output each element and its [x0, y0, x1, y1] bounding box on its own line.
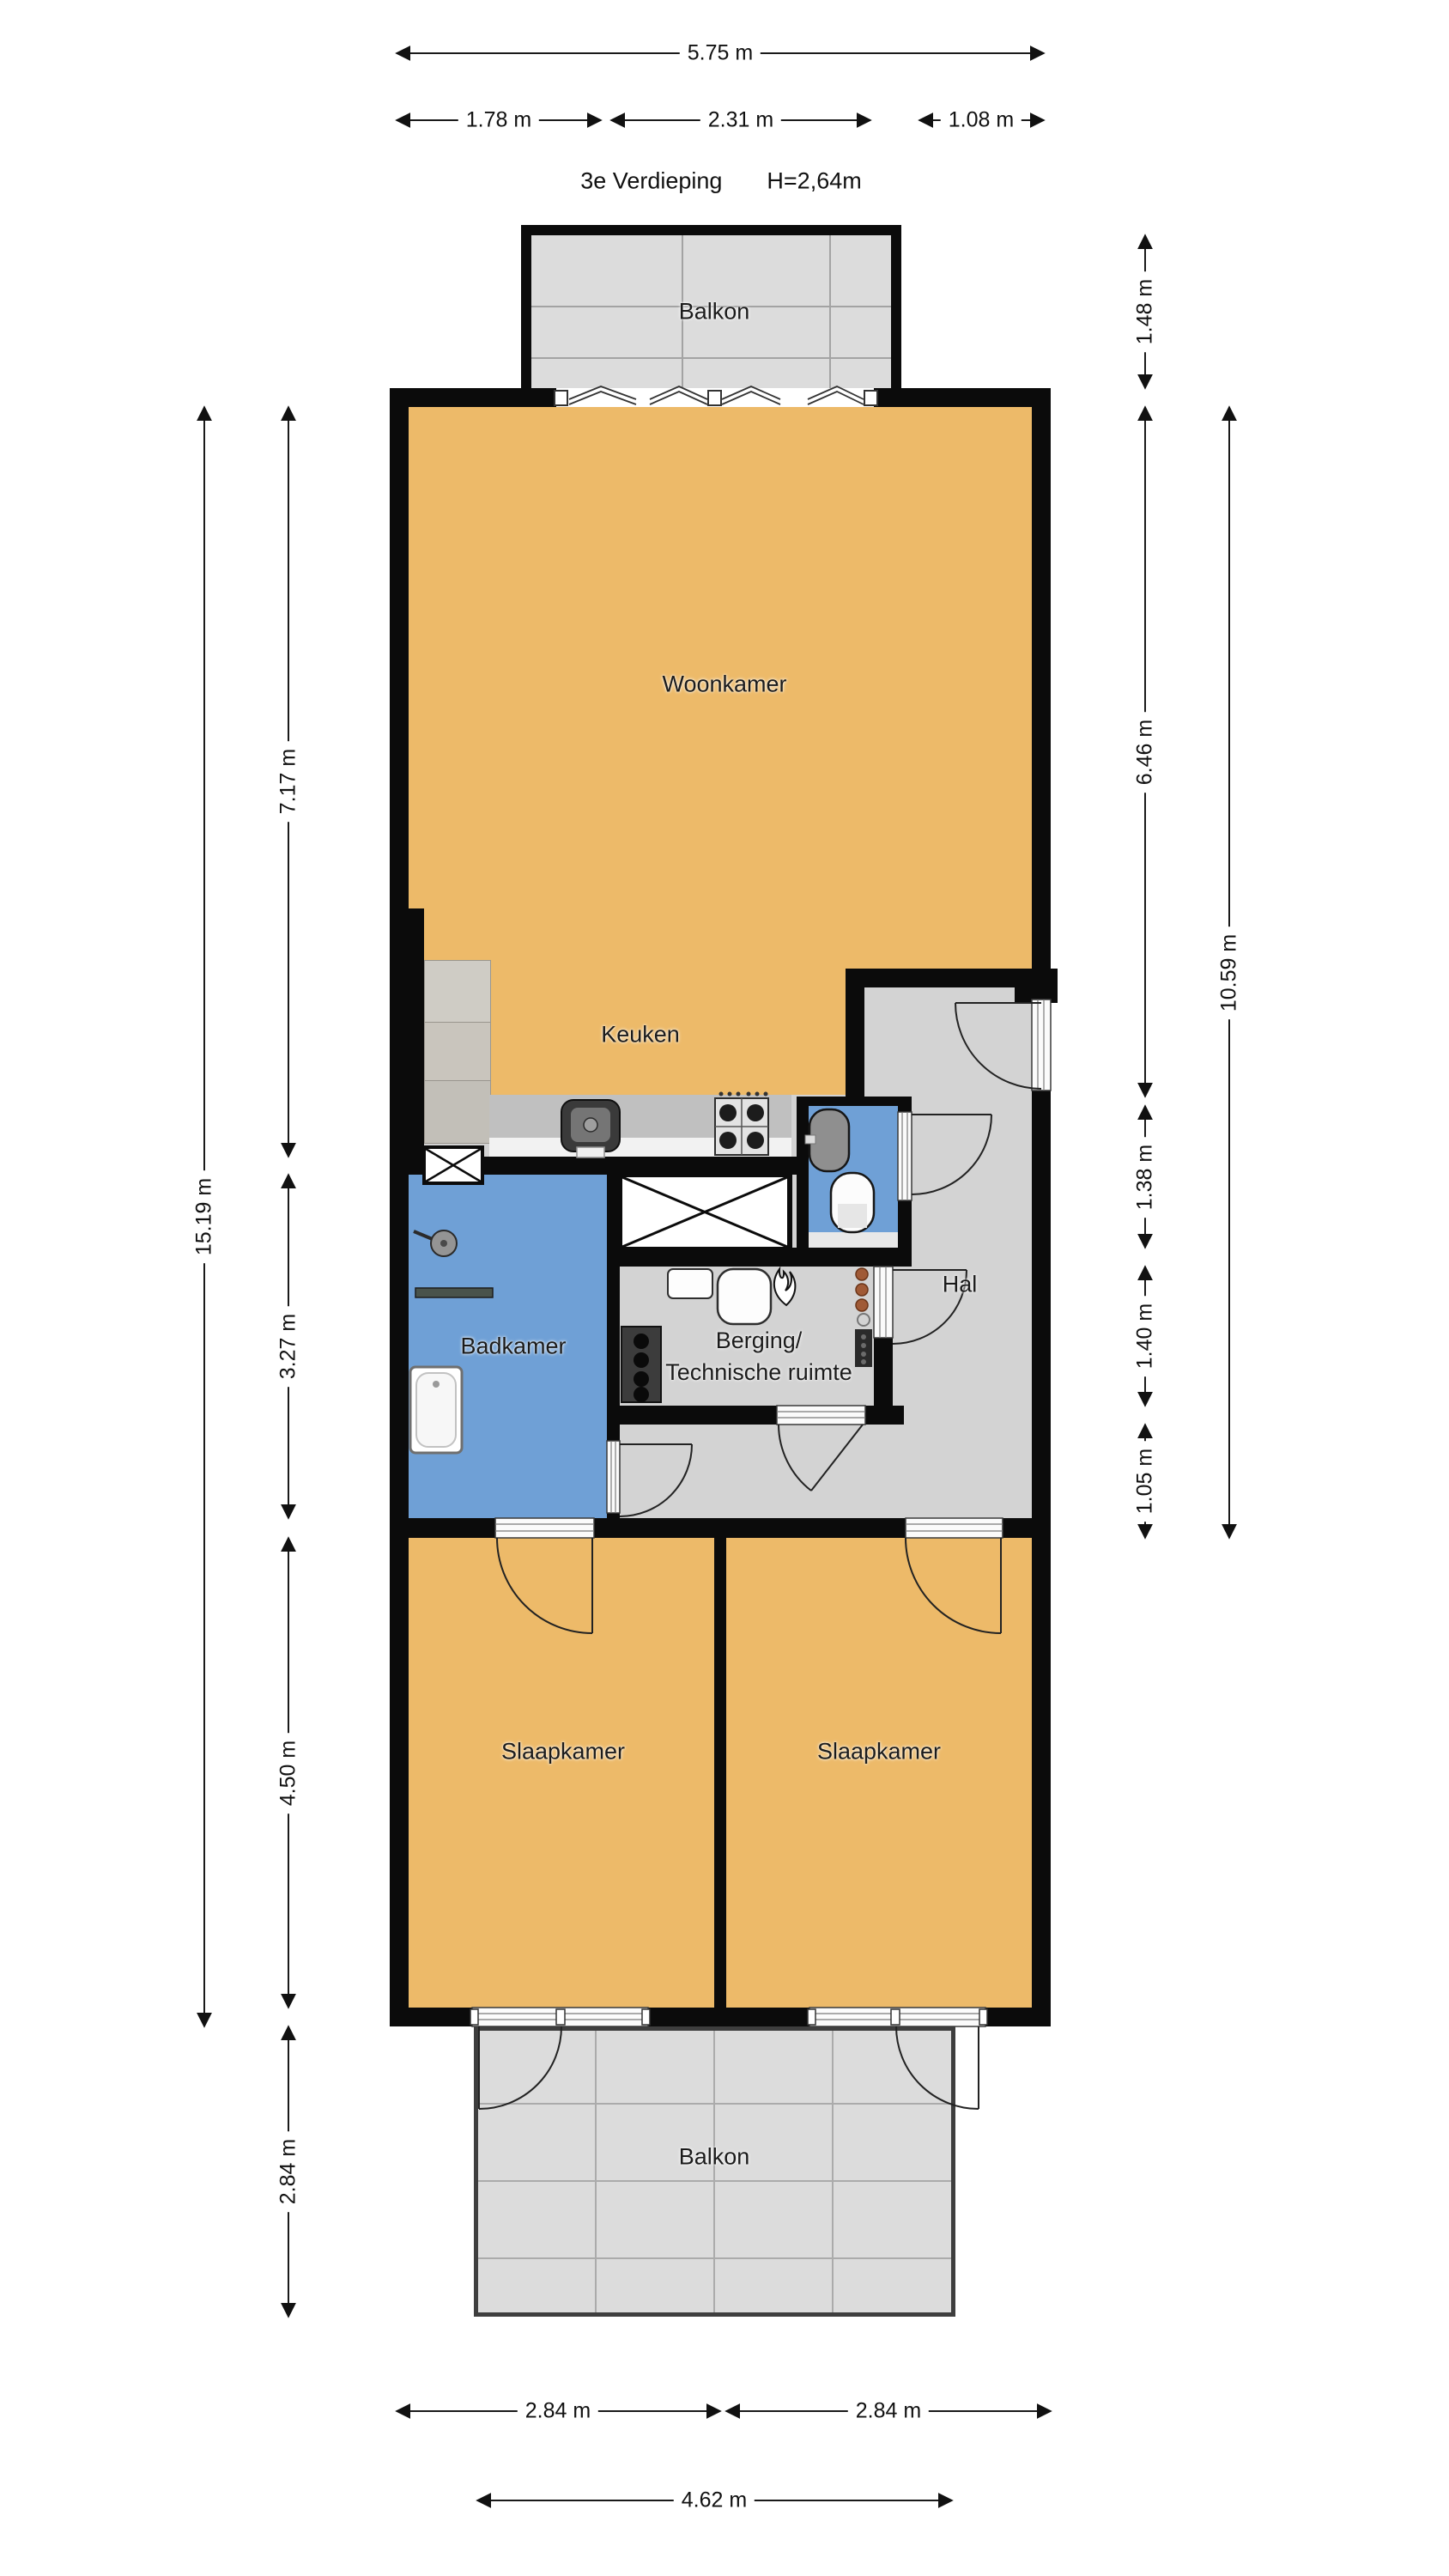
dim-right-balkon: 1.48 m	[1132, 271, 1159, 352]
door-swings	[479, 1003, 1041, 2109]
plan-title: 3e Verdieping	[580, 168, 722, 195]
duct-shaft-icon	[424, 1147, 482, 1183]
stove-hob-icon	[715, 1092, 768, 1156]
boiler-icon	[718, 1269, 771, 1324]
technical-unit-icon	[668, 1269, 712, 1298]
floorplan-drawing	[0, 0, 1449, 2576]
plan-ceiling-height: H=2,64m	[767, 168, 861, 195]
towel-rail-icon	[415, 1288, 493, 1297]
dim-left-woonkamer: 7.17 m	[276, 741, 302, 822]
label-balkon-top: Balkon	[679, 299, 750, 325]
label-berging: Berging/ Technische ruimte	[665, 1325, 852, 1388]
dim-top-right-section: 1.08 m	[941, 107, 1022, 134]
dim-left-balkon: 2.84 m	[276, 2131, 302, 2212]
floorplan-canvas: 3e Verdieping H=2,64m Balkon Woonkamer K…	[0, 0, 1449, 2576]
dim-bottom-balkon: 4.62 m	[674, 2488, 755, 2514]
dim-top-middle-section: 2.31 m	[700, 107, 781, 134]
label-balkon-bottom: Balkon	[679, 2144, 750, 2171]
label-berging-line1: Berging/	[665, 1325, 852, 1357]
kitchen-sink-icon	[561, 1100, 620, 1157]
label-berging-line2: Technische ruimte	[665, 1357, 852, 1388]
dim-left-badkamer: 3.27 m	[276, 1306, 302, 1387]
label-keuken: Keuken	[601, 1022, 680, 1048]
dim-right-berging: 1.40 m	[1132, 1296, 1159, 1376]
coat-hooks-icon	[856, 1268, 870, 1326]
closet-icon	[620, 1175, 790, 1249]
dim-left-slaapkamer: 4.50 m	[276, 1733, 302, 1814]
dimension-lines	[204, 53, 1229, 2500]
plan-title-row: 3e Verdieping H=2,64m	[580, 168, 861, 195]
balcony-bottom-grid	[478, 2031, 951, 2312]
dim-top-left-section: 1.78 m	[458, 107, 539, 134]
label-hal: Hal	[943, 1272, 978, 1298]
dim-bottom-left-slaapkamer: 2.84 m	[518, 2398, 598, 2425]
dim-left-total: 15.19 m	[191, 1170, 218, 1263]
toilet-washbasin-icon	[805, 1109, 849, 1171]
heater-flame-icon	[774, 1269, 796, 1305]
dim-right-toilet: 1.38 m	[1132, 1137, 1159, 1218]
meter-panel-icon	[855, 1329, 872, 1367]
dim-top-total: 5.75 m	[680, 40, 761, 67]
label-woonkamer: Woonkamer	[662, 671, 786, 698]
dim-right-total: 10.59 m	[1216, 927, 1243, 1019]
washing-machine-icon	[621, 1327, 661, 1402]
dim-right-woonkamer: 6.46 m	[1132, 712, 1159, 793]
label-slaapkamer-right: Slaapkamer	[817, 1739, 941, 1765]
label-badkamer: Badkamer	[460, 1334, 566, 1360]
balcony-top-folding-doors-icon	[555, 386, 877, 407]
toilet-bowl-icon	[831, 1173, 874, 1232]
dim-right-hal: 1.05 m	[1132, 1441, 1159, 1522]
label-slaapkamer-left: Slaapkamer	[501, 1739, 625, 1765]
shower-icon	[414, 1230, 457, 1256]
bathtub-icon	[410, 1367, 462, 1453]
dim-bottom-right-slaapkamer: 2.84 m	[848, 2398, 929, 2425]
